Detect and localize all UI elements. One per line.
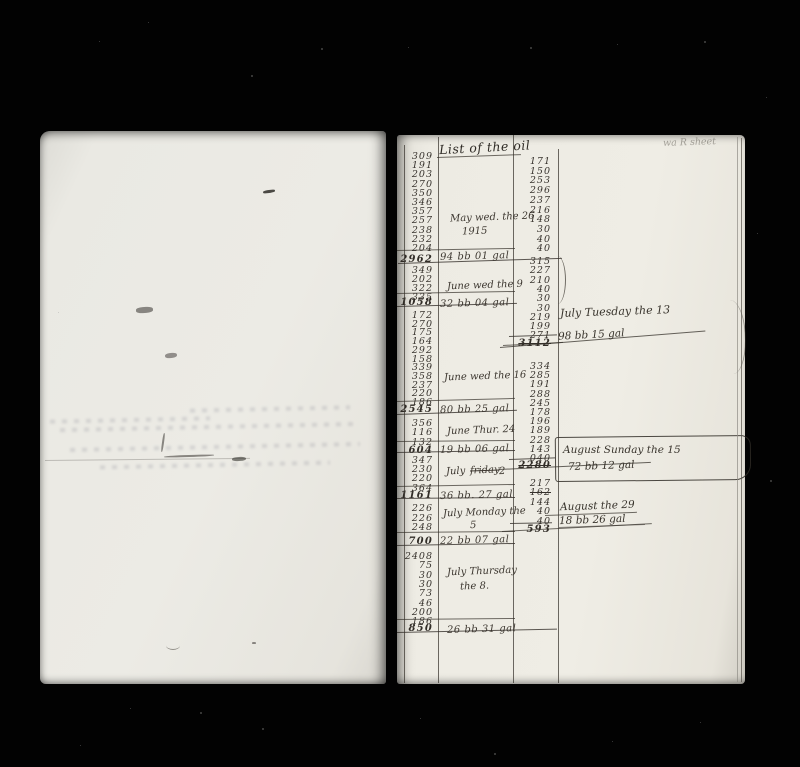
date-note: July bbox=[446, 466, 466, 478]
ink-smudge bbox=[252, 642, 256, 644]
dust-speck bbox=[130, 708, 131, 709]
page-edge-line bbox=[737, 137, 738, 682]
pencil-arc bbox=[166, 641, 180, 650]
dust-speck bbox=[408, 47, 409, 48]
ink-smudge bbox=[263, 189, 275, 193]
ink-bleed-text-line bbox=[100, 461, 330, 470]
dust-speck bbox=[770, 480, 772, 482]
date-note: 1915 bbox=[462, 226, 488, 238]
dust-speck bbox=[612, 741, 613, 742]
dust-speck bbox=[704, 41, 706, 43]
dust-speck bbox=[757, 233, 758, 234]
margin-note-aug15: August Sunday the 15 bbox=[563, 444, 681, 456]
ink-line bbox=[397, 618, 515, 620]
dust-speck bbox=[148, 22, 149, 23]
document-scan: List of the oil wa R sheet July Tuesday … bbox=[0, 0, 800, 767]
dust-speck bbox=[766, 97, 767, 98]
dust-speck bbox=[617, 44, 618, 45]
ledger-entry: 40 bbox=[509, 244, 551, 254]
date-note: 5 bbox=[470, 520, 477, 531]
table-rule-vertical bbox=[558, 149, 559, 683]
table-rule-vertical bbox=[438, 137, 439, 683]
ink-line bbox=[397, 531, 515, 533]
dust-speck bbox=[530, 47, 532, 49]
dust-speck bbox=[80, 745, 81, 746]
dust-speck bbox=[700, 722, 701, 723]
ink-smudge bbox=[165, 352, 177, 358]
left-blank-page bbox=[40, 131, 386, 684]
ink-bleed-text-line bbox=[70, 442, 360, 452]
dust-speck bbox=[58, 312, 59, 313]
dust-speck bbox=[200, 712, 202, 714]
right-ledger-page: List of the oil wa R sheet July Tuesday … bbox=[397, 135, 745, 684]
dust-speck bbox=[99, 41, 100, 42]
ink-bleed-text-line bbox=[60, 422, 360, 432]
date-note: July Thursday bbox=[447, 565, 517, 578]
dust-speck bbox=[321, 48, 323, 50]
pencil-curve bbox=[723, 300, 746, 374]
margin-note-aug29: August the 29 bbox=[560, 499, 635, 514]
corner-pencil-note: wa R sheet bbox=[663, 136, 716, 149]
date-note: friday bbox=[470, 464, 500, 476]
dust-speck bbox=[262, 728, 264, 730]
ink-bleed-text-line bbox=[50, 416, 210, 423]
dust-speck bbox=[420, 718, 421, 719]
ink-smudge bbox=[136, 306, 153, 313]
dust-speck bbox=[251, 75, 253, 77]
ink-smudge bbox=[164, 454, 214, 458]
page-edge-line bbox=[741, 138, 742, 682]
margin-note-july13: July Tuesday the 13 bbox=[560, 303, 671, 320]
faint-rule bbox=[45, 458, 250, 461]
barrel-gallon-total: 36 bb. 27 gal bbox=[440, 489, 513, 502]
ink-line bbox=[397, 440, 515, 442]
date-note: the 8. bbox=[460, 580, 489, 592]
date-note: June Thur. 24 bbox=[447, 424, 516, 437]
dust-speck bbox=[494, 753, 496, 755]
ledger-group-total: 1161 bbox=[395, 491, 433, 501]
august15-outline-box bbox=[555, 435, 751, 482]
ink-bleed-text-line bbox=[190, 405, 350, 412]
brace-curve bbox=[552, 256, 566, 304]
